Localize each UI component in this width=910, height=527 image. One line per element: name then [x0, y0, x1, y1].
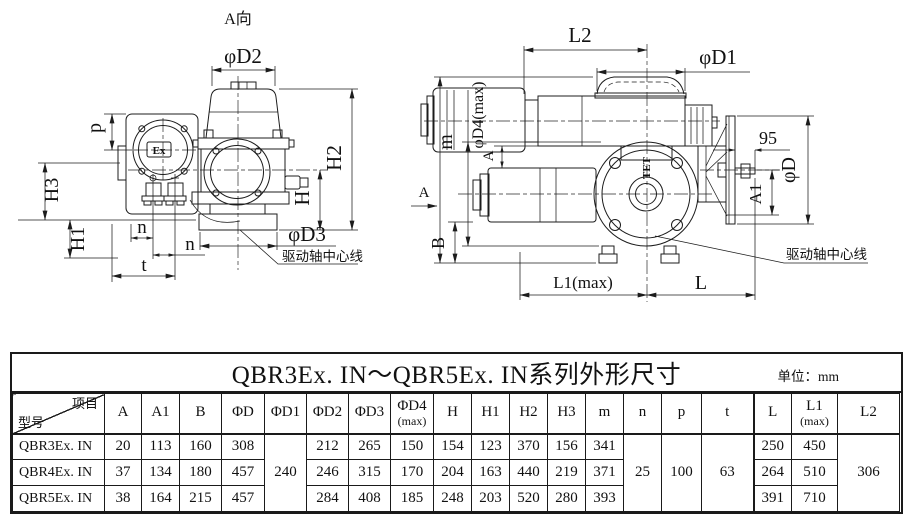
corner-label-item: 项目 — [72, 397, 98, 411]
col-header-text: m — [586, 405, 623, 421]
dim-label-h2: H2 — [322, 145, 346, 171]
col-header-D3: ΦD3 — [349, 394, 391, 434]
dim-label-b: B — [428, 237, 448, 249]
col-header-D4: ΦD4(max) — [391, 394, 434, 434]
dim-label-phid3: φD3 — [288, 222, 326, 246]
table-cell-D: 308 — [222, 434, 265, 460]
dim-label-l1max: L1(max) — [553, 273, 612, 292]
table-header-row: 项目型号AA1BΦDΦD1ΦD2ΦD3ΦD4(max)HH1H2H3mnptLL… — [13, 394, 900, 434]
col-header-L2: L2 — [838, 394, 900, 434]
table-cell-D4: 150 — [391, 434, 434, 460]
dim-label-n1: n — [137, 217, 147, 238]
table-cell-L: 391 — [754, 486, 792, 512]
dim-label-l2: L2 — [568, 23, 591, 47]
col-header-text: A — [105, 405, 141, 421]
col-header-text: H2 — [510, 405, 547, 421]
col-header-text: ΦD2 — [307, 405, 348, 421]
table-title: QBR3Ex. IN～QBR5Ex. IN系列外形尺寸 — [232, 355, 682, 391]
table-cell-t: 63 — [702, 434, 754, 512]
col-header-text: H — [434, 405, 471, 421]
side-view-dimensions: L2 φD1 m φD4(max) A B A 95 — [411, 23, 868, 300]
col-header-H3: H3 — [548, 394, 586, 434]
dimension-grid: 项目型号AA1BΦDΦD1ΦD2ΦD3ΦD4(max)HH1H2H3mnptLL… — [12, 393, 900, 512]
ring-bolt — [255, 190, 261, 196]
table-cell-L1: 450 — [792, 434, 838, 460]
table-cell-H2: 520 — [510, 486, 548, 512]
technical-drawings: Ex — [0, 0, 910, 340]
col-header-D1: ΦD1 — [265, 394, 307, 434]
corner-label-model: 型号 — [18, 416, 44, 430]
drive-axis-annotation: 驱动轴中心线 — [786, 247, 867, 262]
table-row-QBR3ExIN: QBR3Ex. IN201131603082402122651501541233… — [13, 434, 900, 460]
col-header-text: n — [624, 405, 661, 421]
dim-label-n2: n — [185, 234, 195, 255]
table-cell-H3: 219 — [548, 460, 586, 486]
table-row-QBR5ExIN: QBR5Ex. IN381642154572844081852482035202… — [13, 486, 900, 512]
col-header-text: H1 — [472, 405, 509, 421]
left-view-dimensions: A向 φD2 H2 H φD3 p H3 H1 n — [18, 10, 363, 282]
table-title-row: QBR3Ex. IN～QBR5Ex. IN系列外形尺寸 单位：mm — [12, 354, 901, 393]
view-a-label: A向 — [224, 10, 252, 28]
col-header-L: L — [754, 394, 792, 434]
table-cell-D: 457 — [222, 460, 265, 486]
table-cell-A: 38 — [105, 486, 142, 512]
col-header-D2: ΦD2 — [307, 394, 349, 434]
col-header-p: p — [662, 394, 702, 434]
col-header-text: L2 — [838, 405, 899, 421]
col-header-text: B — [180, 405, 221, 421]
col-header-text: ΦD1 — [265, 405, 306, 421]
col-header-H1: H1 — [472, 394, 510, 434]
table-cell-D1: 240 — [265, 434, 307, 512]
col-header-D: ΦD — [222, 394, 265, 434]
ring-bolt — [213, 190, 219, 196]
dim-label-h3: H3 — [41, 178, 63, 202]
table-cell-H: 204 — [434, 460, 472, 486]
table-cell-A1: 134 — [142, 460, 180, 486]
table-cell-H2: 440 — [510, 460, 548, 486]
table-row-QBR4ExIN: QBR4Ex. IN371341804572463151702041634402… — [13, 460, 900, 486]
table-cell-H1: 123 — [472, 434, 510, 460]
col-header-m: m — [586, 394, 624, 434]
foot-bolt — [602, 246, 614, 254]
dim-label-m: m — [435, 134, 457, 150]
col-header-text: ΦD — [222, 405, 264, 421]
table-cell-L: 250 — [754, 434, 792, 460]
dim-label-phid4: φD4(max) — [470, 82, 487, 149]
col-header-text: A1 — [142, 405, 179, 421]
table-cell-A1: 113 — [142, 434, 180, 460]
table-cell-H2: 370 — [510, 434, 548, 460]
side-view-drawing: TET L2 φ — [411, 23, 868, 302]
model-cell: QBR3Ex. IN — [13, 434, 105, 460]
dim-label-h1: H1 — [67, 227, 89, 251]
col-header-text: ΦD4 — [391, 399, 433, 415]
col-header-subtext: (max) — [391, 415, 433, 428]
table-cell-D: 457 — [222, 486, 265, 512]
col-header-n: n — [624, 394, 662, 434]
table-cell-H: 248 — [434, 486, 472, 512]
col-header-t: t — [702, 394, 754, 434]
table-cell-H1: 203 — [472, 486, 510, 512]
table-cell-B: 180 — [180, 460, 222, 486]
worm-housing — [473, 168, 596, 222]
unit-label: 单位：mm — [777, 365, 839, 385]
dim-label-t: t — [141, 255, 147, 276]
table-cell-L1: 710 — [792, 486, 838, 512]
col-header-H: H — [434, 394, 472, 434]
table-cell-m: 341 — [586, 434, 624, 460]
table-cell-H: 154 — [434, 434, 472, 460]
table-cell-D4: 170 — [391, 460, 434, 486]
actuator-body: TET — [594, 142, 698, 263]
dim-label-phid1: φD1 — [699, 45, 737, 69]
table-cell-H3: 280 — [548, 486, 586, 512]
left-view-drawing: Ex — [18, 10, 363, 282]
table-cell-L2: 306 — [838, 434, 900, 512]
dimension-table: QBR3Ex. IN～QBR5Ex. IN系列外形尺寸 单位：mm 项目型号AA… — [10, 352, 903, 514]
dim-label-95: 95 — [759, 128, 777, 148]
table-cell-H3: 156 — [548, 434, 586, 460]
table-cell-p: 100 — [662, 434, 702, 512]
table-cell-A: 20 — [105, 434, 142, 460]
foot-bolt — [664, 246, 676, 254]
table-cell-A: 37 — [105, 460, 142, 486]
table-cell-A1: 164 — [142, 486, 180, 512]
table-cell-n: 25 — [624, 434, 662, 512]
col-header-text: L1 — [792, 399, 837, 415]
view-direction-label: A — [419, 185, 430, 201]
cable-glands — [142, 174, 186, 210]
table-cell-B: 160 — [180, 434, 222, 460]
table-cell-D2: 246 — [307, 460, 349, 486]
dim-label-phid2: φD2 — [224, 44, 262, 68]
dim-label-a1: A1 — [746, 184, 765, 205]
shaft-lug — [285, 176, 300, 189]
table-cell-L1: 510 — [792, 460, 838, 486]
dim-label-l: L — [695, 272, 707, 294]
drive-axis-annotation: 驱动轴中心线 — [282, 249, 363, 264]
col-header-A1: A1 — [142, 394, 180, 434]
dim-label-h: H — [290, 190, 314, 205]
dim-label-a: A — [481, 150, 497, 161]
table-cell-D3: 315 — [349, 460, 391, 486]
table-cell-D3: 265 — [349, 434, 391, 460]
col-header-A: A — [105, 394, 142, 434]
model-cell: QBR5Ex. IN — [13, 486, 105, 512]
col-header-L1: L1(max) — [792, 394, 838, 434]
table-cell-D4: 185 — [391, 486, 434, 512]
table-cell-B: 215 — [180, 486, 222, 512]
table-cell-H1: 163 — [472, 460, 510, 486]
drawing-sheet: Ex — [0, 0, 910, 527]
table-cell-D2: 284 — [307, 486, 349, 512]
col-header-H2: H2 — [510, 394, 548, 434]
tet-logo: TET — [641, 156, 653, 179]
ex-logo: Ex — [153, 145, 166, 157]
col-header-text: H3 — [548, 405, 585, 421]
col-header-text: L — [755, 405, 792, 421]
input-shaft — [735, 168, 755, 174]
dim-label-p: p — [84, 123, 106, 133]
col-header-subtext: (max) — [792, 415, 837, 428]
mounting-flange — [192, 192, 289, 230]
col-header-text: ΦD3 — [349, 405, 390, 421]
dim-label-phid: φD — [778, 157, 800, 183]
col-header-text: p — [662, 405, 701, 421]
table-cell-m: 371 — [586, 460, 624, 486]
table-cell-D2: 212 — [307, 434, 349, 460]
col-header-B: B — [180, 394, 222, 434]
table-cell-L: 264 — [754, 460, 792, 486]
motor-cap — [204, 82, 282, 138]
corner-header-cell: 项目型号 — [13, 394, 105, 434]
table-cell-D3: 408 — [349, 486, 391, 512]
table-cell-m: 393 — [586, 486, 624, 512]
control-housing — [538, 77, 717, 146]
model-cell: QBR4Ex. IN — [13, 460, 105, 486]
col-header-text: t — [702, 405, 753, 421]
